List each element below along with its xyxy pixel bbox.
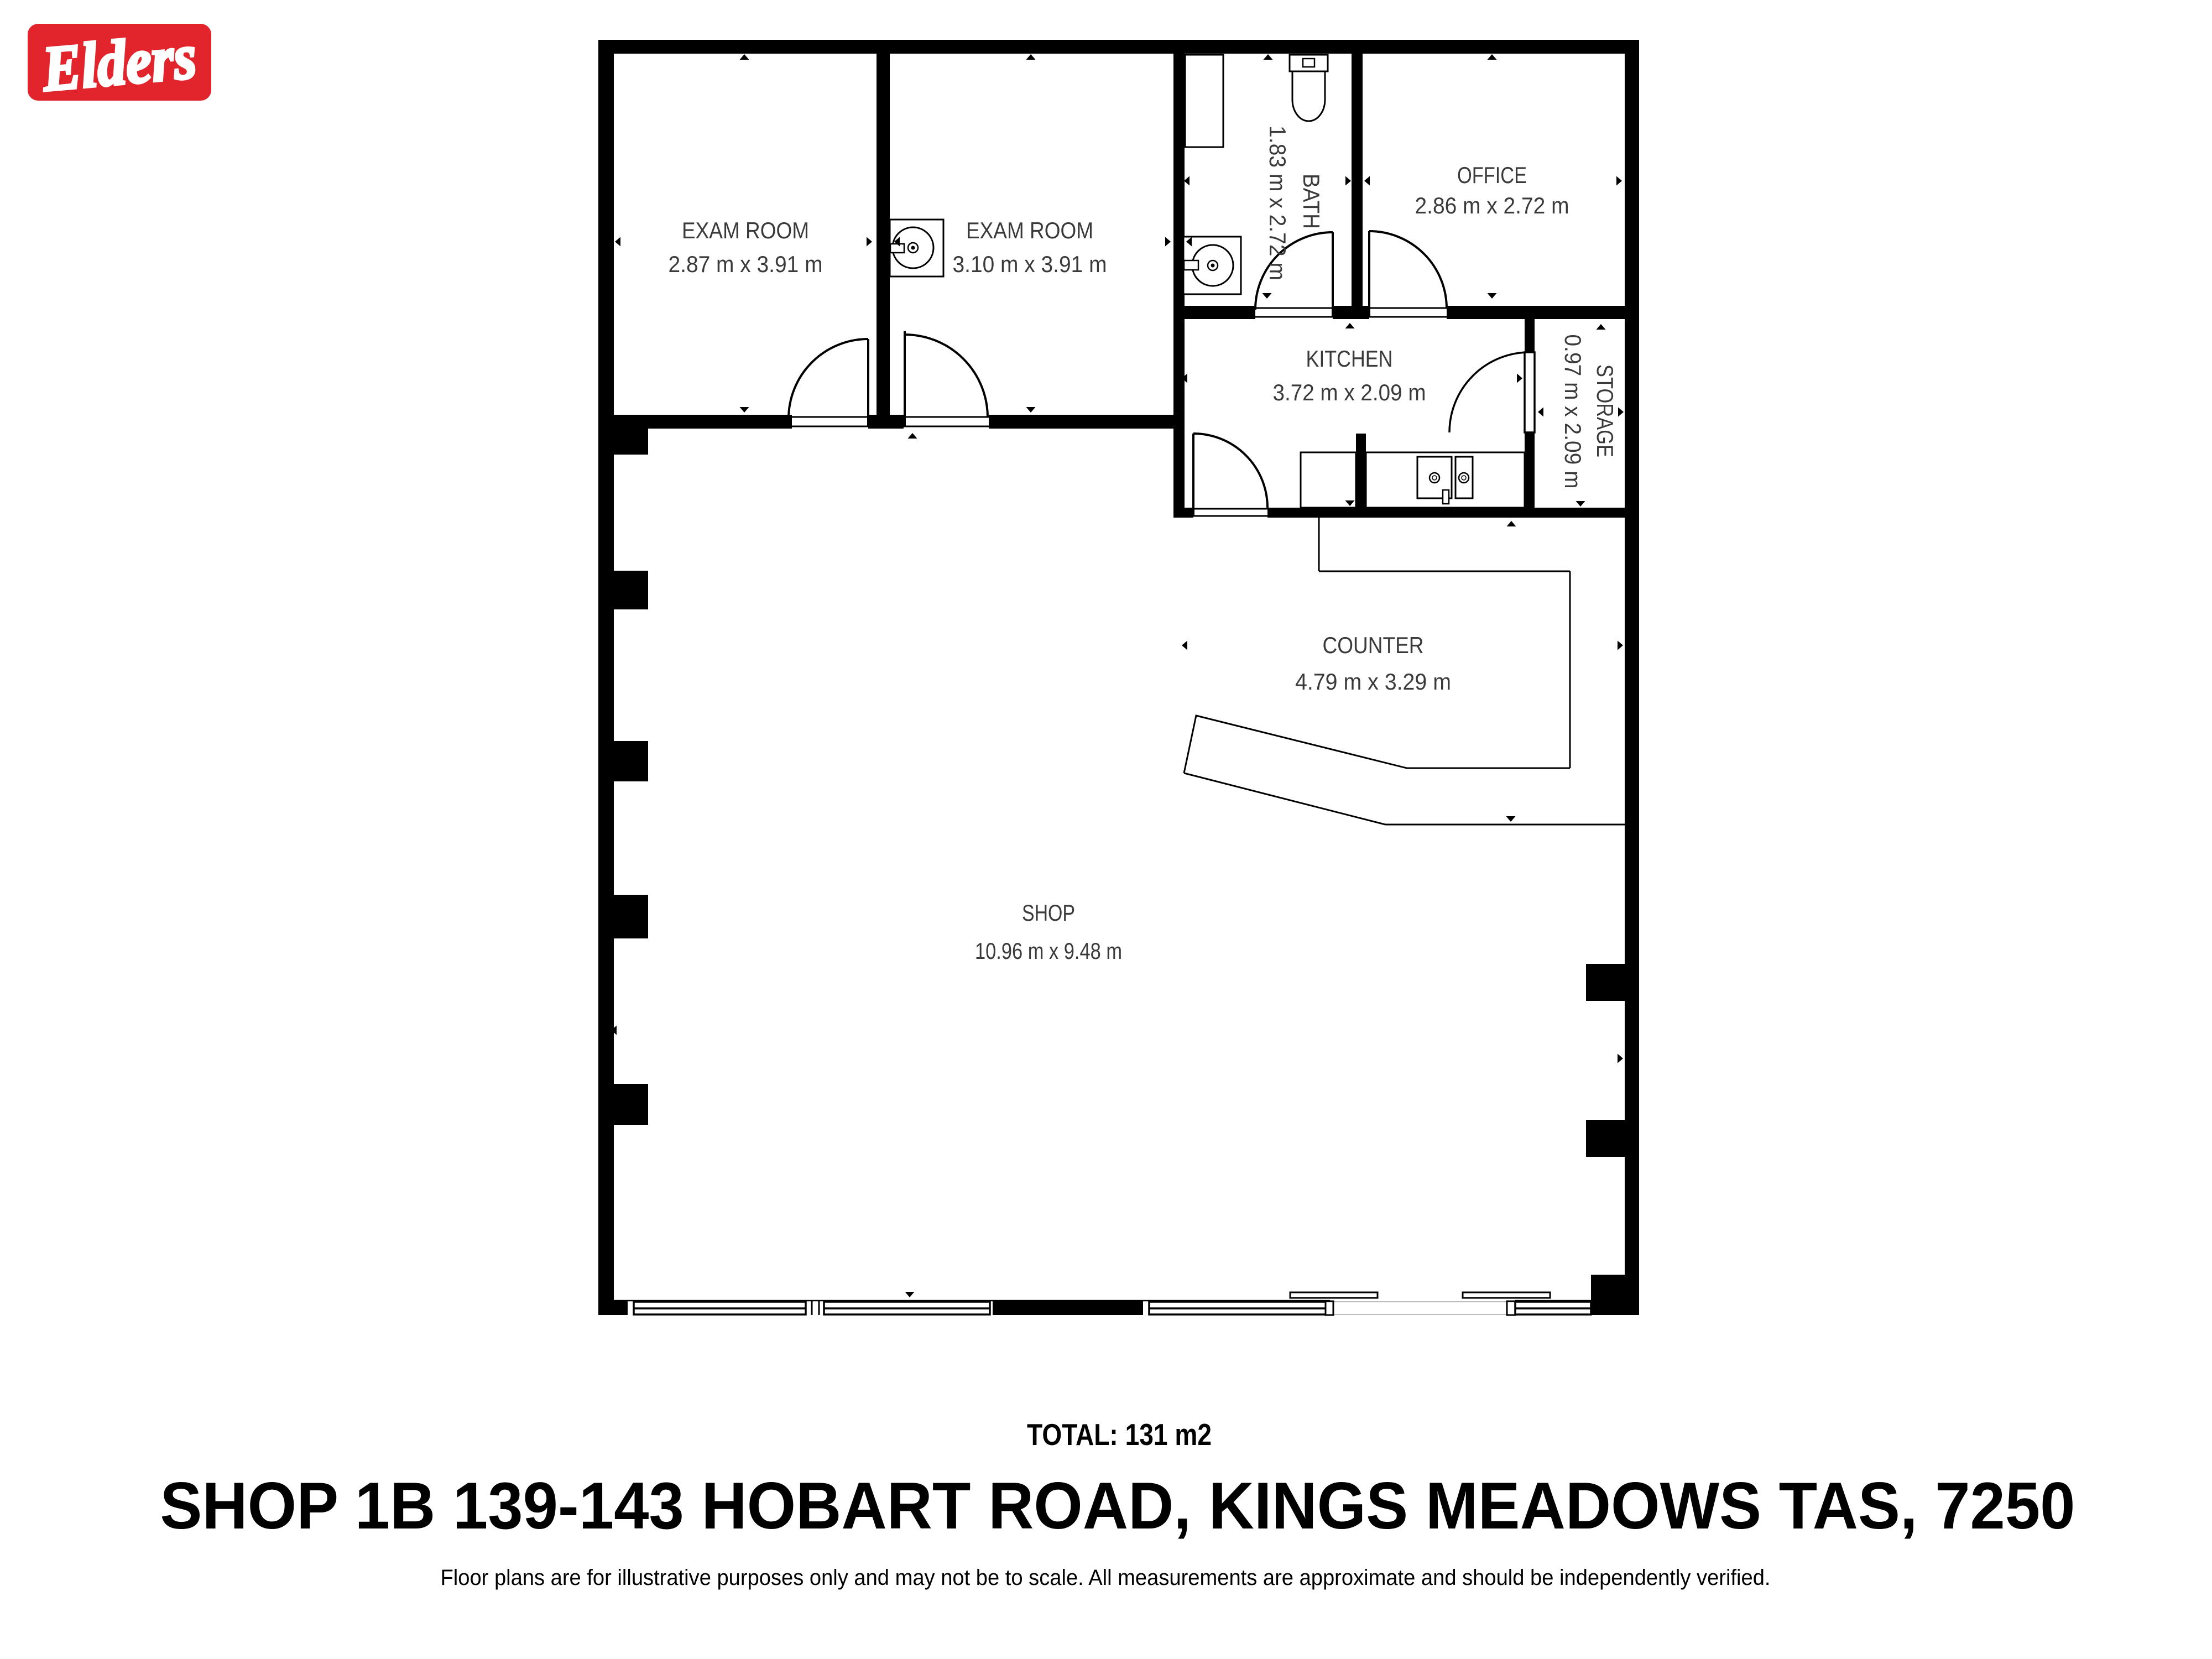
svg-text:SHOP: SHOP [1022,900,1075,926]
svg-text:Floor plans are for illustrati: Floor plans are for illustrative purpose… [441,1566,1771,1590]
svg-text:TOTAL: 131 m2: TOTAL: 131 m2 [1027,1417,1212,1452]
svg-text:3.10 m x 3.91 m: 3.10 m x 3.91 m [953,251,1107,277]
svg-text:1.83 m x 2.72 m: 1.83 m x 2.72 m [1265,126,1291,280]
svg-text:BATH: BATH [1298,174,1324,229]
svg-text:COUNTER: COUNTER [1323,632,1424,658]
svg-text:Elders: Elders [39,21,199,105]
svg-text:OFFICE: OFFICE [1457,162,1527,188]
svg-text:STORAGE: STORAGE [1592,364,1618,457]
svg-text:EXAM ROOM: EXAM ROOM [966,217,1093,243]
svg-text:4.79 m x 3.29 m: 4.79 m x 3.29 m [1295,669,1451,695]
svg-text:2.87 m x 3.91 m: 2.87 m x 3.91 m [669,251,823,277]
svg-text:10.96 m x 9.48 m: 10.96 m x 9.48 m [975,938,1122,964]
svg-text:2.86 m x 2.72 m: 2.86 m x 2.72 m [1415,192,1569,218]
svg-text:EXAM ROOM: EXAM ROOM [682,217,809,243]
svg-text:SHOP 1B 139-143 HOBART ROAD, K: SHOP 1B 139-143 HOBART ROAD, KINGS MEADO… [160,1469,2075,1543]
svg-text:0.97 m x 2.09 m: 0.97 m x 2.09 m [1560,335,1586,489]
svg-text:KITCHEN: KITCHEN [1306,346,1393,372]
svg-text:3.72 m x 2.09 m: 3.72 m x 2.09 m [1273,379,1426,405]
